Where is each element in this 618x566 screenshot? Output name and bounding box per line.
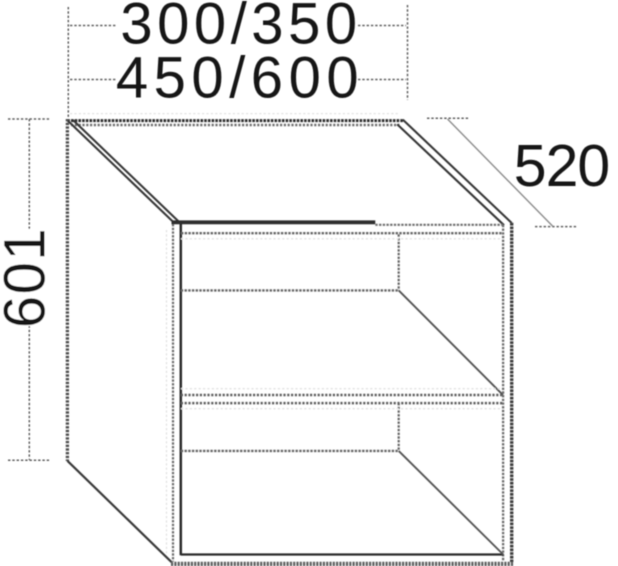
svg-text:520: 520 bbox=[514, 133, 609, 199]
svg-text:450/600: 450/600 bbox=[116, 46, 364, 111]
svg-text:601: 601 bbox=[0, 227, 58, 328]
